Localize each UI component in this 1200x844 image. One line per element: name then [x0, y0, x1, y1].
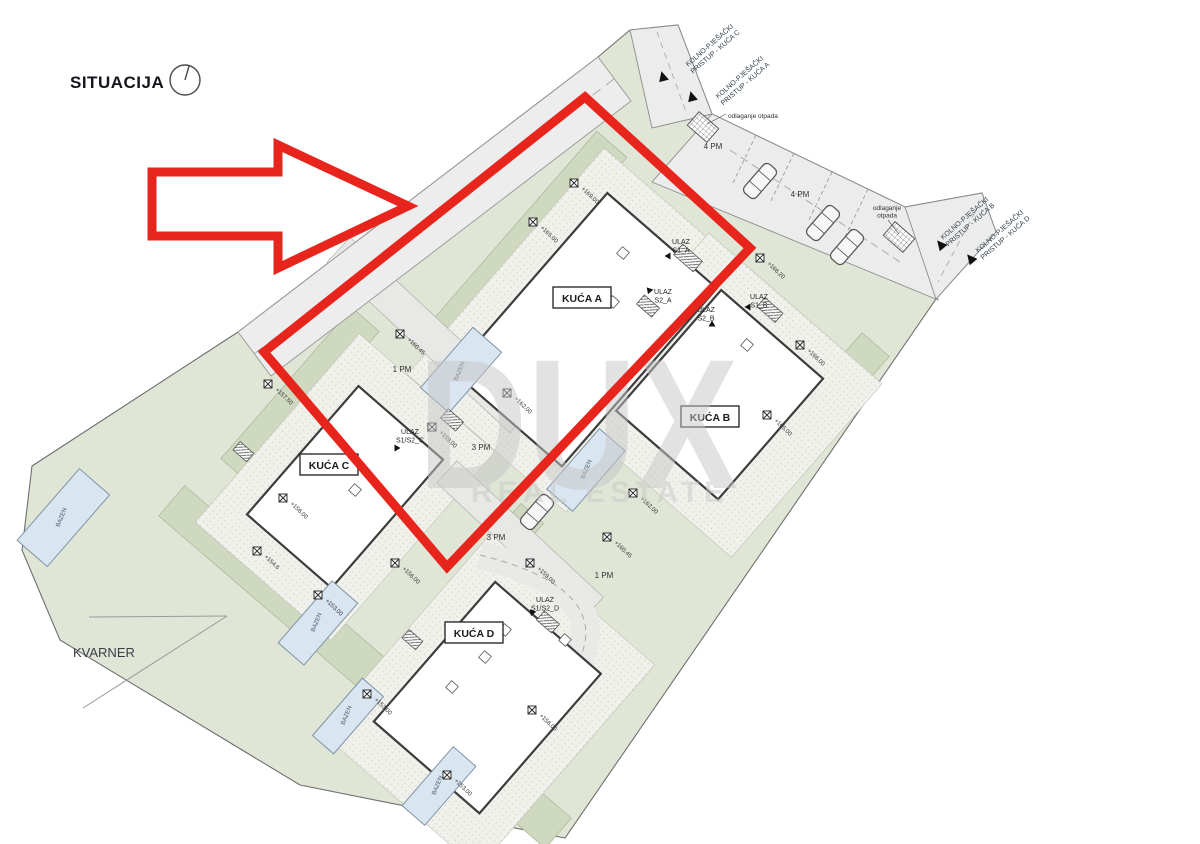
parking-3pm-d: 3 PM — [487, 533, 506, 542]
site-plan-drawing: KUĆA A KUĆA B KUĆA C KUĆA D ULAZS1_A ULA… — [0, 0, 1200, 844]
kuca-c-label: KUĆA C — [309, 459, 350, 472]
parking-4pm-north: 4 PM — [704, 142, 723, 151]
label-kuca-d: KUĆA D — [445, 622, 503, 643]
site-plan-page: KUĆA A KUĆA B KUĆA C KUĆA D ULAZS1_A ULA… — [0, 0, 1200, 844]
region-label: KVARNER — [73, 645, 135, 660]
label-kuca-a: KUĆA A — [553, 287, 611, 308]
parking-1pm-a: 1 PM — [393, 365, 412, 374]
north-arrow-icon — [170, 65, 200, 95]
parking-4pm-east: 4 PM — [791, 190, 810, 199]
ulaz-s1b-label: ULAZS1_B — [750, 294, 769, 310]
ulaz-s2a-label: ULAZS2_A — [654, 289, 673, 305]
waste-label-1: odlaganje otpada — [728, 113, 778, 120]
kuca-d-label: KUĆA D — [454, 627, 495, 640]
parking-1pm-d: 1 PM — [595, 571, 614, 580]
access-label-kuca-c: KOLNO-PJEŠAČKIPRISTUP - KUĆA C — [683, 21, 742, 75]
ulaz-s1a-label: ULAZS1_A — [672, 239, 691, 255]
page-title: SITUACIJA — [70, 73, 164, 92]
kuca-a-label: KUĆA A — [562, 292, 602, 305]
access-label-kuca-a: KOLNO-PJEŠAČKIPRISTUP - KUĆA A — [713, 53, 771, 107]
